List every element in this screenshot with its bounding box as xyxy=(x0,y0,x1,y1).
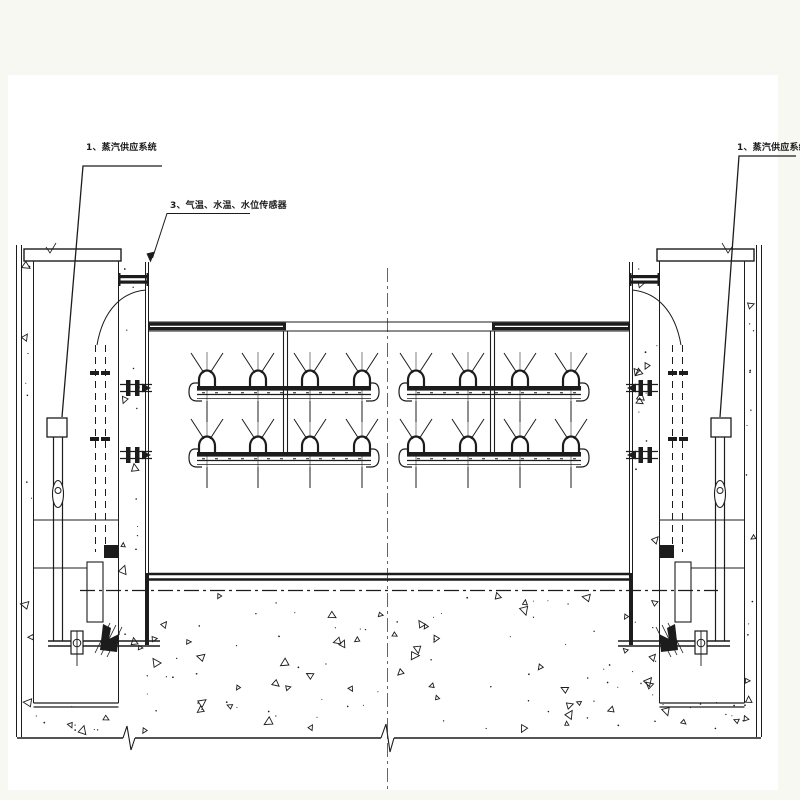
steam-header xyxy=(148,323,286,331)
nozzle-dome xyxy=(250,371,266,387)
pier-cap xyxy=(24,249,121,261)
label-steam-system-left: 1、蒸汽供应系统 xyxy=(86,141,157,153)
nozzle-dome xyxy=(354,437,370,453)
nozzle-dome xyxy=(199,371,215,387)
cad-drawing: 1、蒸汽供应系统 3、气温、水温、水位传感器 1、蒸汽供应系统 xyxy=(0,0,800,800)
nozzle-dome xyxy=(302,437,318,453)
nozzle-dome xyxy=(199,437,215,453)
nozzle-dome xyxy=(354,371,370,387)
embedded-part xyxy=(87,562,103,622)
nozzle-dome xyxy=(250,437,266,453)
drawing-canvas xyxy=(8,75,778,790)
label-sensors: 3、气温、水温、水位传感器 xyxy=(170,199,288,211)
label-steam-system-right: 1、蒸汽供应系统 xyxy=(737,141,800,153)
nozzle-dome xyxy=(302,371,318,387)
drawing-page: 1、蒸汽供应系统 3、气温、水温、水位传感器 1、蒸汽供应系统 xyxy=(0,0,800,800)
